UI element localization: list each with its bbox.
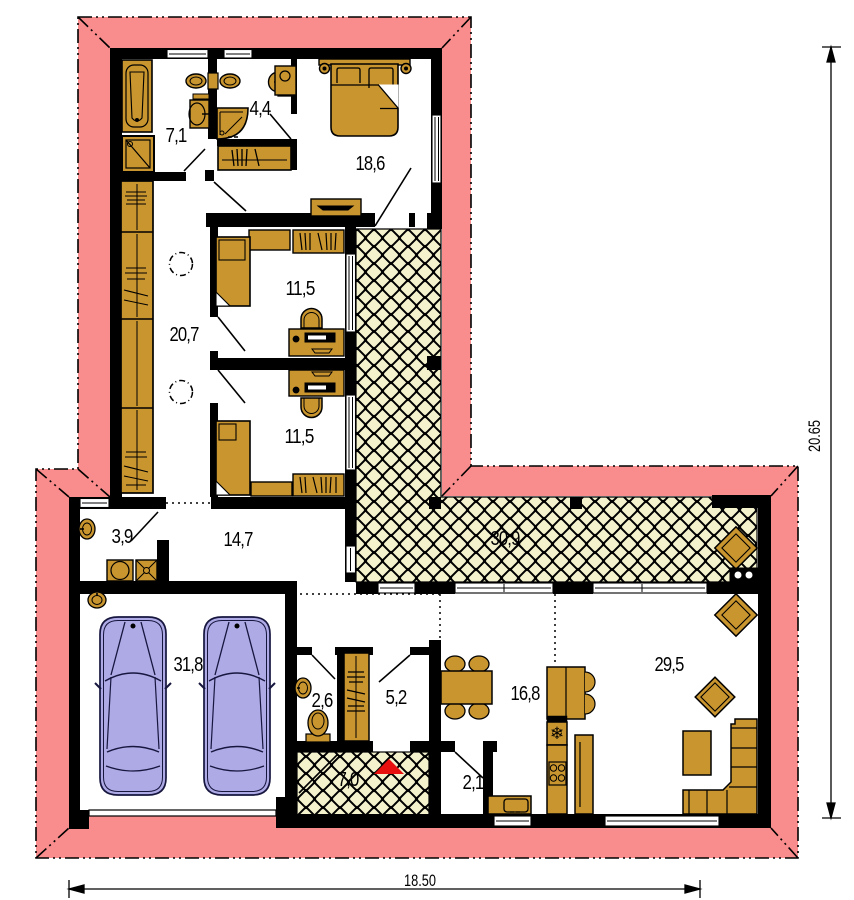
svg-text:11,5: 11,5: [286, 278, 316, 300]
svg-text:7,1: 7,1: [166, 125, 188, 147]
svg-text:2,6: 2,6: [312, 690, 334, 712]
svg-text:31,8: 31,8: [174, 654, 204, 676]
svg-text:2,1: 2,1: [463, 772, 485, 794]
svg-text:5,2: 5,2: [386, 687, 408, 709]
svg-text:18.50: 18.50: [404, 871, 436, 890]
svg-text:16,8: 16,8: [511, 683, 541, 705]
svg-text:20,7: 20,7: [170, 324, 200, 346]
svg-text:20.65: 20.65: [805, 420, 824, 452]
svg-text:11,5: 11,5: [285, 426, 315, 448]
svg-text:29,5: 29,5: [655, 654, 685, 676]
svg-text:3,9: 3,9: [112, 526, 134, 548]
svg-text:7,0: 7,0: [338, 769, 360, 791]
svg-text:4,4: 4,4: [250, 98, 272, 120]
svg-text:❄: ❄: [550, 724, 564, 743]
svg-text:14,7: 14,7: [224, 529, 254, 551]
svg-text:18,6: 18,6: [356, 153, 386, 175]
